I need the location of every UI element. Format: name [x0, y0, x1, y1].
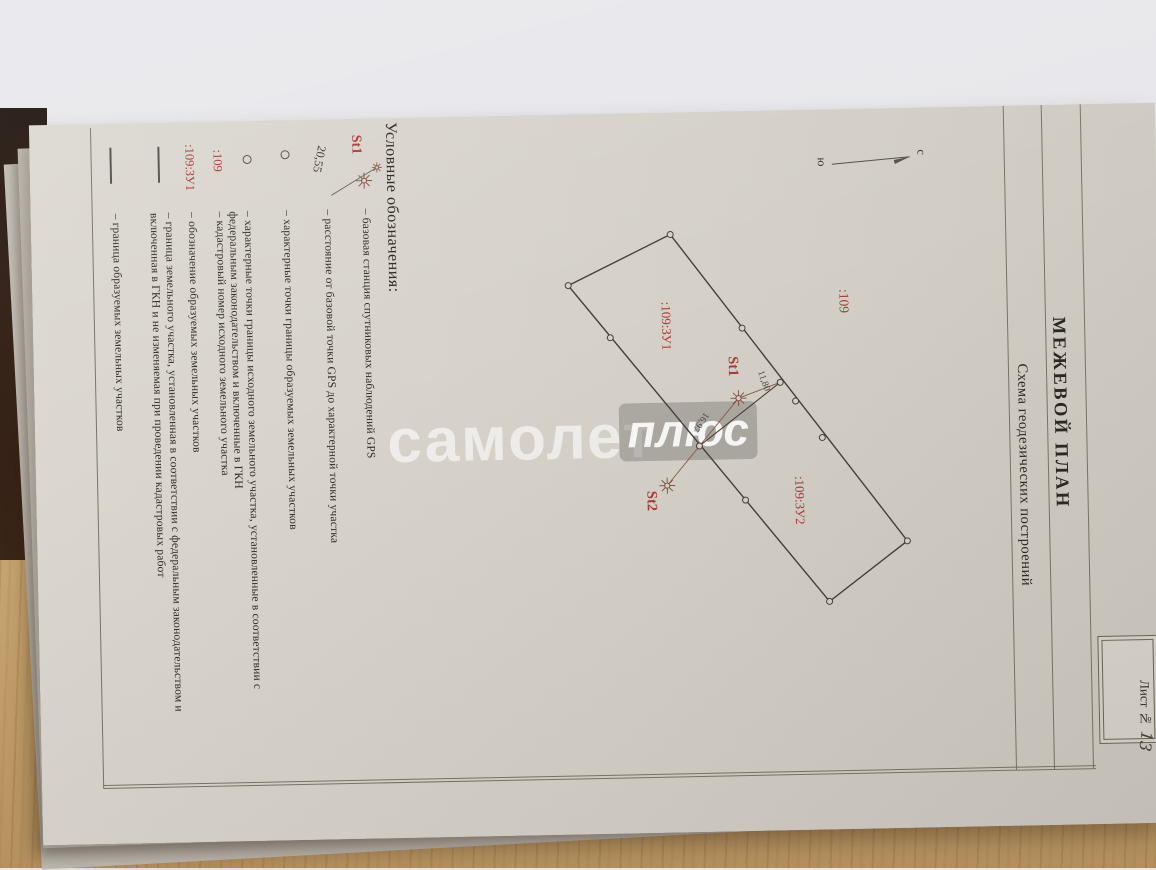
frame-left-border	[90, 128, 104, 788]
point-circle-icon	[243, 155, 252, 164]
sheet-number-handwritten: 13	[1135, 730, 1156, 752]
frame-outer-border	[1080, 104, 1094, 768]
boundary-line-icon	[157, 147, 159, 183]
parcel-divider-line	[698, 382, 781, 446]
sheet-label: Лист №	[1137, 680, 1153, 726]
sheet-number-box-inner: Лист №13	[1101, 639, 1155, 740]
label-parcel-zu2: :109:ЗУ2	[792, 476, 808, 525]
characteristic-points	[564, 227, 911, 610]
legend-row-text: – обозначение образуемых земельных участ…	[183, 212, 210, 752]
legend-row-text: – характерные точки границы образуемых з…	[278, 210, 305, 750]
station-st1-star-icon	[730, 390, 746, 406]
boundary-line-icon	[109, 148, 111, 184]
compass-north-arrow: ю с	[809, 137, 935, 185]
distance-line-icon	[328, 158, 387, 199]
parcel-plan-drawing: :109 :109:ЗУ1 :109:ЗУ2 St1 St2 11,80 16,…	[533, 201, 963, 729]
parcel-boundary-polygon	[567, 230, 908, 607]
point-circle-icon	[280, 150, 289, 159]
legend-st1-label: St1	[347, 135, 363, 155]
compass-north-letter: с	[915, 149, 929, 155]
sheet-number-box: Лист №13	[1097, 635, 1156, 744]
legend-distance-label: 20,55	[309, 144, 329, 173]
frame-bottom-border-inner	[103, 768, 1096, 789]
legend-row-text: – граница земельного участка, установлен…	[126, 212, 187, 748]
label-parent-parcel: :109	[836, 289, 851, 314]
label-station-st2: St2	[643, 491, 659, 511]
station-st2-star-icon	[659, 477, 675, 493]
document-title: МЕЖЕВОЙ ПЛАН	[1047, 317, 1074, 597]
label-distance-1180: 11,80	[755, 369, 771, 392]
compass-south-letter: ю	[815, 157, 829, 166]
legend-row-text: – базовая станция спутниковых наблюдений…	[357, 208, 384, 748]
document-subtitle: Схема геодезических построений	[1013, 363, 1037, 703]
frame-bottom-border-outer	[103, 765, 1096, 786]
label-distance-1697: 16,97	[690, 410, 711, 433]
legend-row-text: – расстояние от базовой точки GPS до хар…	[319, 209, 346, 749]
legend-formed-parcel-label: :109:ЗУ1	[181, 144, 197, 191]
label-parcel-zu1: :109:ЗУ1	[659, 301, 675, 350]
legend-cadastral-number-label: :109	[209, 149, 224, 172]
survey-plan-sheet: МЕЖЕВОЙ ПЛАН Схема геодезических построе…	[29, 103, 1156, 845]
photo-of-survey-document: { "document": { "title": "МЕЖЕВОЙ ПЛАН",…	[0, 0, 1156, 868]
label-station-st1: St1	[725, 356, 741, 376]
